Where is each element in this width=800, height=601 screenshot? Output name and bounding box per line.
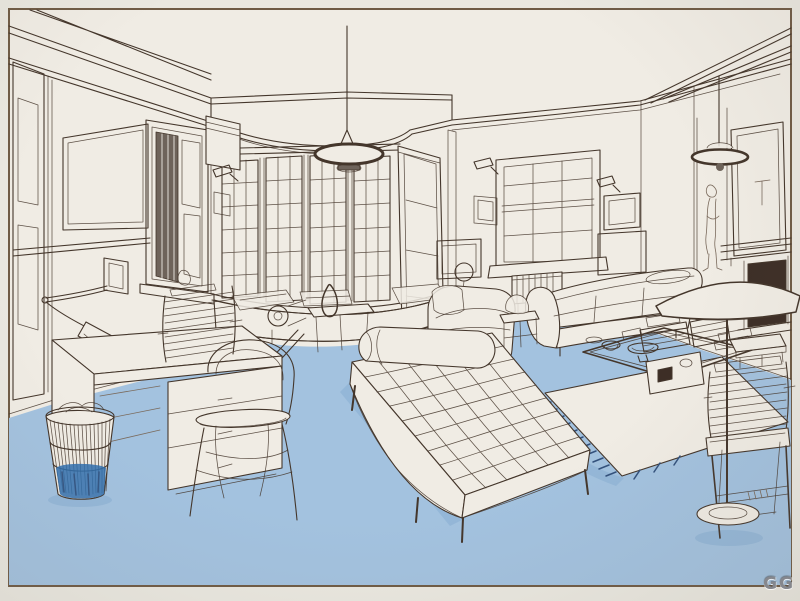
lamp-base-shadow (695, 530, 763, 546)
drawing-canvas (0, 0, 800, 601)
framed-interior-drawing: GG (0, 0, 800, 601)
watermark: GG (763, 574, 795, 594)
pendant-shade (315, 144, 383, 164)
wire-wastebasket (46, 403, 114, 500)
saucer-shade (692, 150, 748, 165)
floor-lamp-base (697, 503, 759, 525)
bay-corner-block (206, 116, 240, 170)
bolster (359, 327, 495, 368)
